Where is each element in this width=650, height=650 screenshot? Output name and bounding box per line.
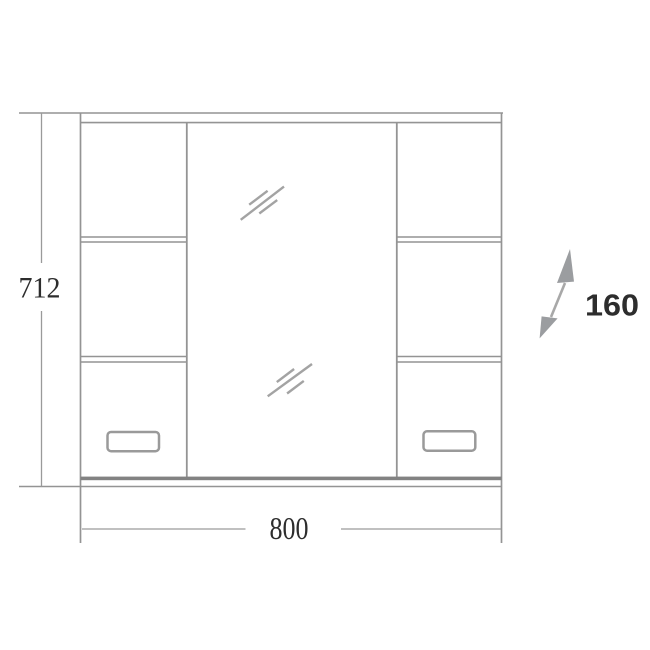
svg-text:712: 712 [19, 272, 61, 305]
svg-text:160: 160 [585, 288, 639, 323]
svg-text:800: 800 [270, 510, 309, 546]
